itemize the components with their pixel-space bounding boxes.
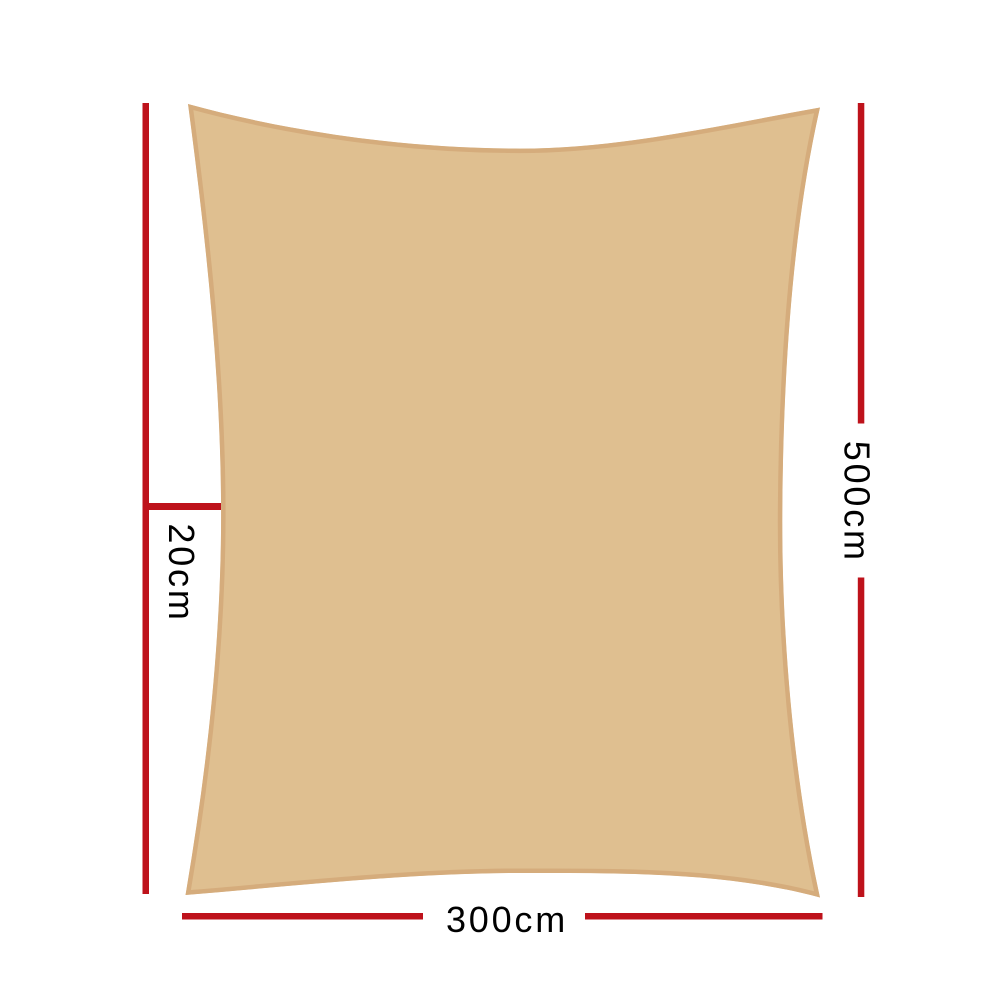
svg-text:300cm: 300cm [446,899,568,940]
svg-text:20cm: 20cm [161,523,202,622]
svg-text:500cm: 500cm [837,441,878,563]
